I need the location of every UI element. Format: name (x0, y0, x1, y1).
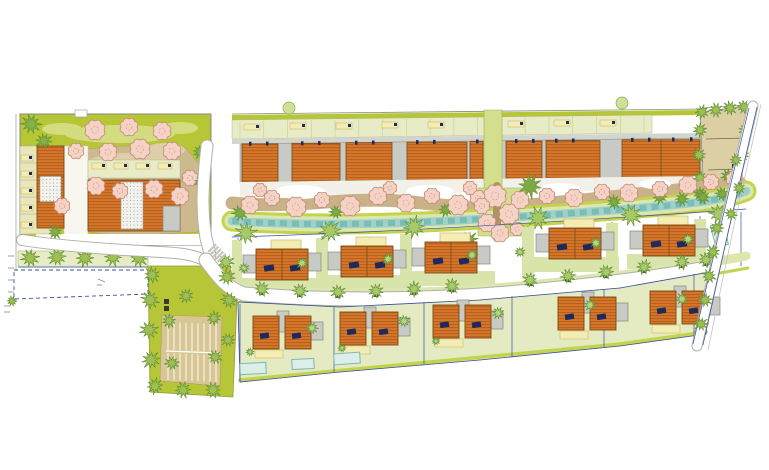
house-roof (285, 316, 311, 349)
band-roof-ticks-rect (318, 141, 321, 145)
site-plan (0, 0, 769, 470)
house (325, 237, 411, 290)
garage (630, 231, 643, 249)
shed-marker (29, 156, 32, 159)
shed-marker (348, 124, 351, 127)
shed-marker (566, 121, 569, 124)
garden-shed (114, 163, 128, 169)
garden-shed (92, 163, 106, 169)
building-a-courtyard (40, 176, 61, 202)
band-roof-ticks-rect (372, 141, 375, 145)
garden-shed (136, 163, 150, 169)
road-north (203, 146, 210, 264)
terrace (560, 331, 588, 339)
band-roof-ticks-rect (690, 137, 693, 141)
band-roof-ticks-rect (555, 139, 558, 143)
garage (477, 246, 490, 264)
garage (536, 234, 549, 252)
garden-shed (554, 120, 570, 126)
left-block-court-rect (64, 146, 88, 238)
rowhouse-segment (242, 144, 278, 182)
house-roof (465, 305, 491, 338)
garage (601, 232, 614, 250)
parking-bins-rect (164, 306, 169, 311)
round-tree-icon (283, 102, 295, 114)
terrace (564, 219, 594, 229)
pool (292, 358, 314, 369)
house-roof (558, 297, 584, 330)
terrace (440, 233, 470, 243)
shed-marker (29, 206, 32, 209)
band-roof-ticks-rect (416, 140, 419, 144)
band-roof-ticks-rect (433, 140, 436, 144)
rowhouse-segment (506, 141, 542, 179)
band-roof-ticks-rect (648, 138, 651, 142)
garden-shed (21, 188, 33, 194)
garden-shed (508, 121, 524, 127)
shed-marker (124, 164, 127, 167)
band-roof-ticks-rect (515, 139, 518, 143)
shed-marker (29, 223, 32, 226)
house-roof (433, 305, 459, 338)
vacant-parcel-shape (14, 270, 148, 299)
shed-marker (29, 189, 32, 192)
rowhouse-segment (546, 141, 600, 179)
band-roof-ticks-rect (249, 142, 252, 146)
band-roof-ticks-rect (672, 138, 675, 142)
garage (412, 248, 425, 266)
vacant-parcel (14, 270, 148, 299)
garage (616, 303, 628, 321)
band-roof-ticks-rect (532, 139, 535, 143)
parking-bins-rect (164, 299, 169, 304)
terrace (271, 240, 301, 250)
building-b-annex (163, 206, 180, 231)
house-roof (372, 312, 398, 345)
garden-shed (21, 205, 33, 211)
rowhouse-segment (346, 143, 392, 181)
shed-marker (520, 122, 523, 125)
garden-shed (336, 123, 352, 129)
garden-shed (21, 171, 33, 177)
band-roof-ticks-rect (476, 140, 479, 144)
terrace (435, 339, 463, 347)
garden-shed (290, 123, 306, 129)
shed-marker (29, 172, 32, 175)
shed-marker (146, 164, 149, 167)
shed-marker (394, 123, 397, 126)
shed-marker (440, 123, 443, 126)
shed-marker (302, 124, 305, 127)
terrace (255, 350, 283, 358)
house-roof (340, 312, 366, 345)
left-block-lawn-waves-blob (42, 123, 82, 135)
house-roof (650, 291, 676, 324)
garage (393, 250, 406, 268)
rowhouse-segment (622, 140, 700, 178)
shed-marker (102, 164, 105, 167)
rowhouse-segment (470, 142, 483, 180)
terrace (658, 216, 688, 226)
garden-shed (21, 155, 33, 161)
building-a-courtyard-rect (40, 176, 61, 202)
rowhouse-segment (407, 142, 467, 180)
garage (328, 252, 341, 270)
house (409, 233, 495, 286)
building-b-annex-rect (163, 206, 180, 231)
shed-marker (612, 121, 615, 124)
band-roof-ticks-rect (572, 139, 575, 143)
shed-marker (256, 125, 259, 128)
house-roof (590, 297, 616, 330)
left-block-court (64, 146, 88, 238)
site-plan-drawing (0, 0, 769, 470)
shed-marker (168, 164, 171, 167)
garage (695, 229, 708, 247)
garage (308, 253, 321, 271)
terrace (652, 325, 680, 333)
garden-shed (21, 222, 33, 228)
band-rowhouses (242, 140, 700, 182)
garden-shed (244, 124, 260, 130)
house-roof (253, 316, 279, 349)
pool (334, 352, 361, 365)
garden-shed (428, 122, 444, 128)
garden-shed (382, 122, 398, 128)
band-roof-ticks-rect (631, 138, 634, 142)
band-roof-ticks-rect (355, 141, 358, 145)
garden-shed (158, 163, 172, 169)
band-roof-ticks-rect (266, 142, 269, 146)
pool (240, 362, 267, 374)
garden-shed (600, 120, 616, 126)
band-roof-ticks-rect (301, 141, 304, 145)
left-block-hut-rect (75, 110, 87, 117)
round-tree-icon (616, 97, 628, 109)
terrace (356, 237, 386, 247)
rowhouse-segment (292, 143, 340, 181)
left-block-hut (75, 110, 87, 117)
